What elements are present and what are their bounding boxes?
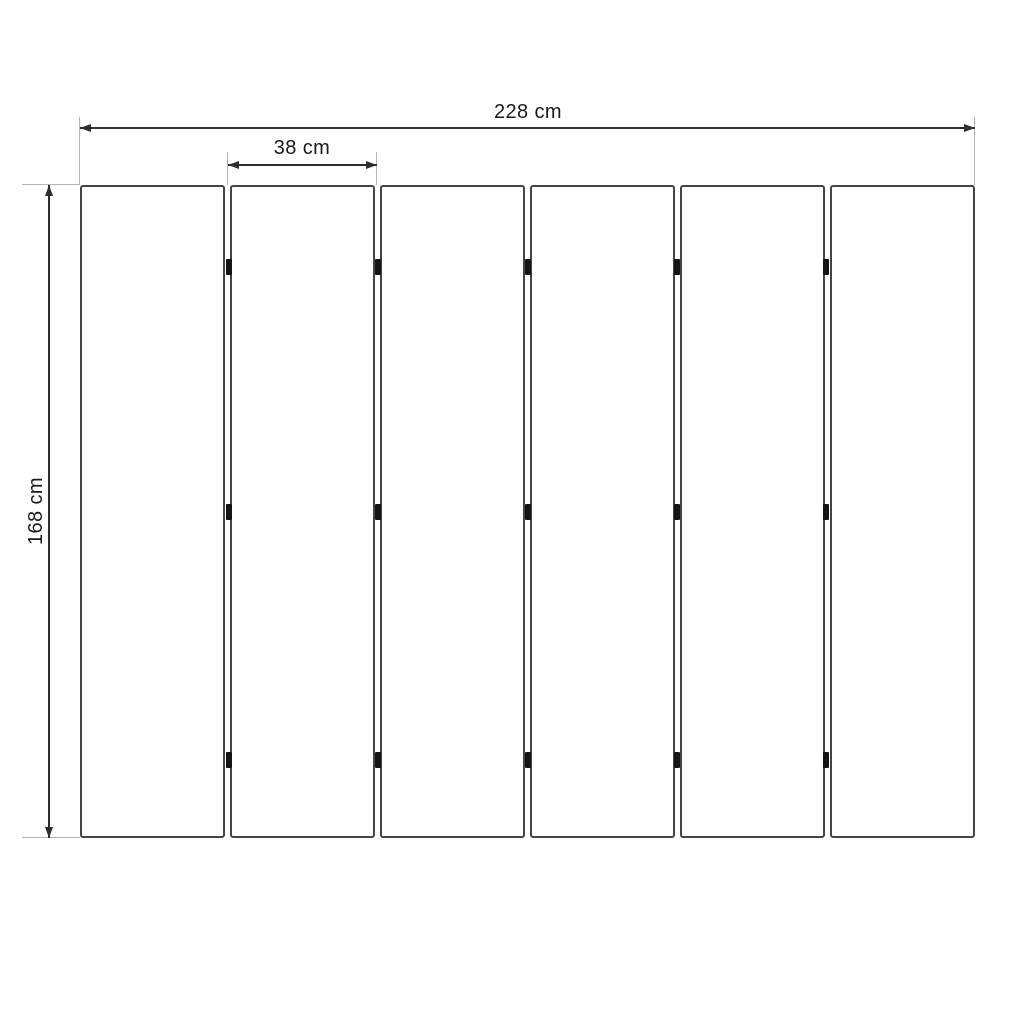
panel-width-dimension-line xyxy=(228,164,377,166)
height-label: 168 cm xyxy=(26,477,46,545)
panel-1 xyxy=(80,185,225,838)
panel-2 xyxy=(230,185,375,838)
panel-3 xyxy=(380,185,525,838)
panel-4 xyxy=(530,185,675,838)
height-dimension-line xyxy=(48,185,50,838)
total-width-label: 228 cm xyxy=(494,102,562,122)
dimension-diagram: 228 cm 38 cm 168 cm xyxy=(0,0,1024,1024)
total-width-dimension-line xyxy=(80,127,975,129)
panel-width-label: 38 cm xyxy=(274,138,330,158)
panel-6 xyxy=(830,185,975,838)
panel-5 xyxy=(680,185,825,838)
panels-row xyxy=(80,185,975,838)
